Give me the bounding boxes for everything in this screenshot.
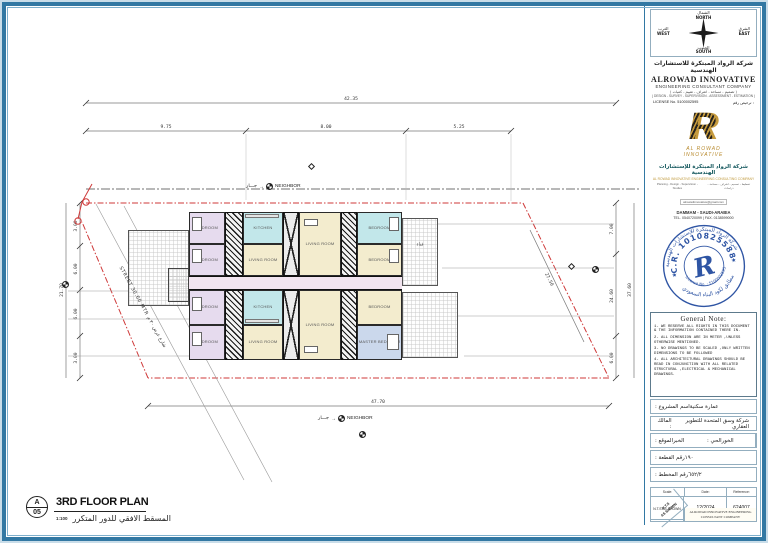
company-contact: شركة الرواد المبتكرة للإستشارات الهندسية… — [650, 164, 757, 220]
contact-phone: TEL. 0540720099 | FAX. 0138599000 — [650, 216, 757, 220]
stamp-icon: شركة الرواد المبتكرة للإستشارات الهندسية… — [651, 214, 755, 318]
general-note-3: 3- NO DRAWINGS TO BE SCALED ,ONLY WRITTE… — [654, 347, 753, 357]
stair-core — [225, 212, 243, 276]
room-kitchen: KITCHEN — [243, 290, 283, 325]
svg-text:27.50: 27.50 — [543, 272, 555, 287]
view-reference-bubble: A 05 — [26, 496, 48, 518]
compass-icon: الشمالNORTH الشرقEAST الغربWEST الجنوبSO… — [651, 10, 756, 56]
company-logo: R R AL ROWAD INNOVATIVE — [650, 106, 757, 164]
svg-text:47.70: 47.70 — [371, 399, 385, 405]
level-marker-icon — [62, 281, 69, 288]
entrance-porch — [168, 268, 189, 302]
sheet-letter: A — [27, 499, 47, 508]
title-underline — [54, 511, 146, 512]
stair-core — [341, 290, 357, 360]
company-name-arabic: شركة الرواد المبتكرة للاستشارات الهندسية — [650, 60, 757, 74]
arrow-icon: → — [331, 416, 336, 422]
svg-text:42.35: 42.35 — [344, 96, 358, 102]
room-living: LIVING ROOM — [299, 290, 341, 360]
terrace-label: فناء — [417, 243, 424, 248]
contact-email: alrowadinnovative@gmail.com — [680, 199, 727, 205]
stair-core — [225, 290, 243, 360]
stair-core — [341, 212, 357, 276]
svg-text:6.00: 6.00 — [73, 308, 79, 319]
room-bedroom: BEDROOM — [189, 244, 225, 276]
services-english: ( DESIGN - SURVEY - SUPERVISION - ASSESS… — [650, 94, 757, 98]
contact-company-english: AL ROWAD INNOVATIVE ENGINEERING CONSULTI… — [650, 177, 757, 181]
neighbor-label-bottom: جـــار → NEIGHBOR — [318, 415, 373, 422]
room-bedroom: BEDROOM — [357, 290, 402, 325]
license-label-arabic: ترخيص رقم : — [733, 100, 754, 105]
contact-services-english: Planning - Design - Supervision - Studie… — [652, 182, 703, 190]
svg-text:6.00: 6.00 — [609, 352, 615, 363]
logo-r-icon: R R — [650, 106, 757, 146]
room-living: LIVING ROOM — [243, 244, 283, 276]
room-bedroom: BEDROOM — [189, 325, 225, 360]
company-header: شركة الرواد المبتكرة للاستشارات الهندسية… — [650, 59, 757, 106]
room-living: LIVING ROOM — [299, 212, 341, 276]
license-number: LICENSE No. 5100002595 — [653, 100, 698, 105]
central-corridor — [189, 276, 402, 290]
svg-text:9.75: 9.75 — [160, 124, 171, 130]
field-district: الحي : الخور — [703, 434, 756, 447]
field-location-district: الموقع : الخبر الحي : الخور — [650, 433, 757, 448]
scale-value-2: N.T.S AS SHOWN — [653, 507, 681, 511]
view-title-arabic: المسقط الافقي للدور المتكرر — [73, 514, 171, 523]
room-bedroom: BEDROOM — [189, 290, 225, 325]
general-note-title: General Note: — [654, 315, 753, 323]
svg-text:3.00: 3.00 — [73, 220, 79, 231]
contact-company-arabic: شركة الرواد المبتكرة للإستشارات الهندسية — [650, 164, 757, 176]
room-bedroom: BEDROOM — [189, 212, 225, 244]
svg-text:37.60: 37.60 — [627, 283, 633, 297]
title-block: الشمالNORTH الشرقEAST الغربWEST الجنوبSO… — [644, 6, 762, 525]
scale-cell-extension: N.T.S AS SHOWN — [650, 496, 684, 522]
compass-box: الشمالNORTH الشرقEAST الغربWEST الجنوبSO… — [650, 9, 757, 57]
room-bedroom: BEDROOM — [357, 244, 402, 276]
terrace-right-lower — [402, 292, 458, 358]
level-marker-icon — [338, 415, 345, 422]
room-kitchen: KITCHEN — [243, 212, 283, 244]
room-master-bedroom: MASTER BEDROOM — [357, 325, 402, 360]
level-marker-icon — [359, 431, 366, 438]
svg-text:3.00: 3.00 — [73, 352, 79, 363]
general-note-2: 2- ALL DIMENSION ARE IN METER ,UNLESS OT… — [654, 336, 753, 346]
field-owner: المالك : شركة وسق المتحدة للتطوير العقار… — [650, 416, 757, 431]
sheet-border-inner: 42.35 9.75 8.00 5.25 21.70 — [4, 4, 764, 539]
reference-header: Reference: — [727, 488, 756, 497]
svg-text:7.00: 7.00 — [609, 223, 615, 234]
svg-text:5.25: 5.25 — [453, 124, 464, 130]
compass-star-icon — [689, 18, 719, 48]
field-plan-number: رقم المخطط : ٦٥٢/٢ — [650, 467, 757, 482]
contact-services-arabic: تخطيط - تصميم - اشراف - مساحة - دراسات — [703, 182, 755, 190]
general-note-4: 4- ALL ARCHITECTURAL DRAWINGS SHOULD BE … — [654, 358, 753, 378]
contact-city: DAMMAM - SAUDI-ARABIA — [650, 210, 757, 215]
title-block-company-footer: ALROWAD INNOVATIVE ENGINEERING CONSULTAN… — [684, 508, 757, 522]
general-note-box: General Note: 1- WE RESERVE ALL RIGHTS I… — [650, 312, 757, 397]
company-name-english: ALROWAD INNOVATIVE — [650, 75, 757, 84]
terrace-right-upper: فناء — [402, 218, 438, 286]
view-scale: 1:100 — [56, 516, 68, 521]
arrow-icon: → — [259, 184, 264, 190]
field-plot-number: رقم القطعة : ١٩٠ — [650, 450, 757, 465]
svg-text:6.00: 6.00 — [73, 263, 79, 274]
company-stamp: شركة الرواد المبتكرة للإستشارات الهندسية… — [650, 222, 757, 310]
drawing-area: 42.35 9.75 8.00 5.25 21.70 — [18, 18, 646, 537]
elevator-core — [283, 290, 299, 360]
field-location: الموقع : الخبر — [651, 434, 703, 447]
room-living: LIVING ROOM — [243, 325, 283, 360]
date-header: Date: — [685, 488, 727, 497]
room-bedroom: BEDROOM — [357, 212, 402, 244]
field-project-name: اسم المشروع : عمارة سكنية — [650, 399, 757, 414]
level-marker-icon — [592, 266, 599, 273]
view-title: 3RD FLOOR PLAN — [56, 496, 148, 508]
level-marker-icon — [266, 183, 273, 190]
neighbor-label-top: جـــار → NEIGHBOR — [246, 183, 301, 190]
company-type: ENGINEERING CONSULTANT COMPANY — [650, 84, 757, 89]
general-note-1: 1- WE RESERVE ALL RIGHTS IN THIS DOCUMEN… — [654, 325, 753, 335]
svg-text:8.00: 8.00 — [320, 124, 331, 130]
drawing-sheet: 42.35 9.75 8.00 5.25 21.70 — [0, 0, 768, 543]
sheet-number: 05 — [33, 508, 41, 516]
svg-text:24.60: 24.60 — [609, 289, 615, 303]
elevator-core — [283, 212, 299, 276]
